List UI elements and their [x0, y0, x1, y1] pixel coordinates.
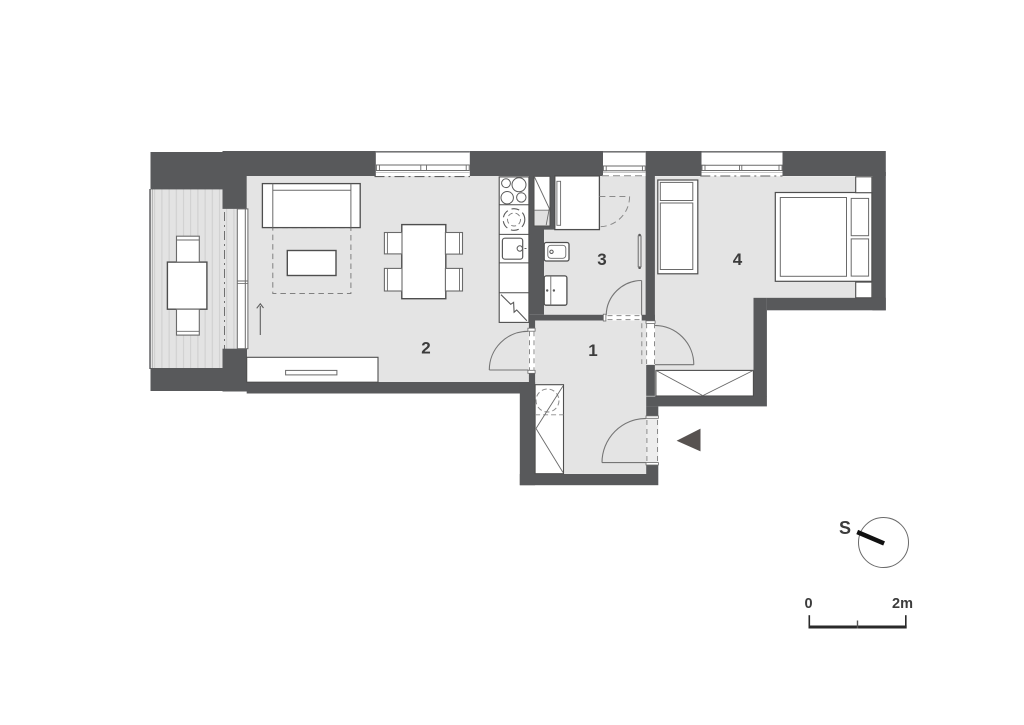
svg-text:1: 1: [588, 341, 597, 360]
svg-text:0: 0: [804, 596, 812, 612]
svg-text:3: 3: [597, 250, 606, 269]
svg-text:S: S: [839, 518, 851, 538]
svg-text:2: 2: [421, 339, 430, 358]
svg-text:4: 4: [733, 250, 743, 269]
svg-text:2m: 2m: [892, 596, 913, 612]
